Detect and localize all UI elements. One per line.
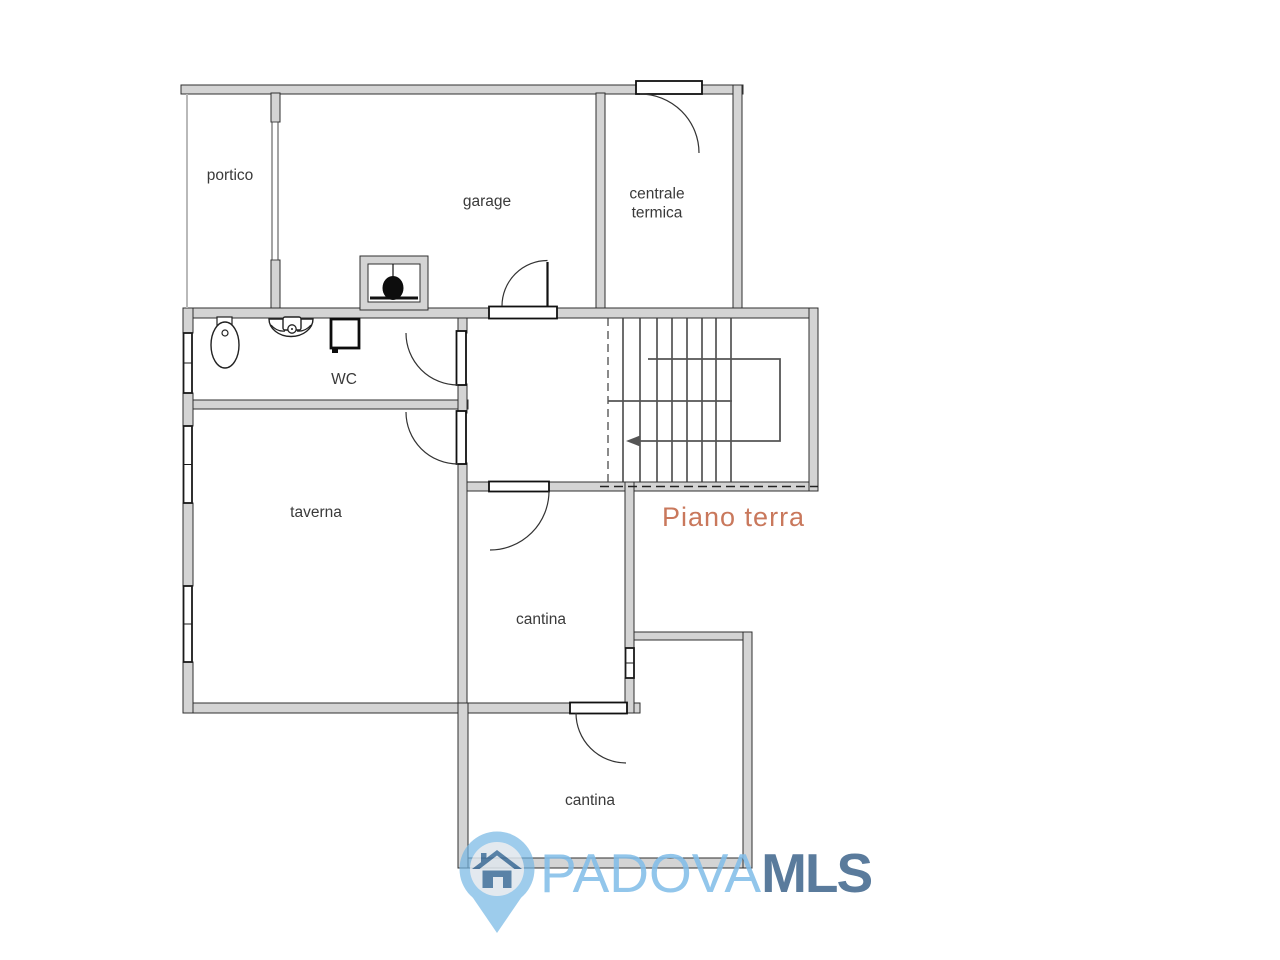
drain-icon — [383, 276, 404, 300]
floor-plan-drawing — [0, 0, 1280, 960]
room-label-wc: WC — [331, 371, 357, 389]
stair-direction-arrow — [626, 436, 640, 447]
door-cantina-2 — [570, 703, 627, 764]
wc-fixtures — [211, 317, 359, 368]
door-taverna — [406, 411, 466, 464]
door-wc — [406, 331, 466, 385]
shaft — [360, 256, 428, 310]
room-label-taverna: taverna — [290, 504, 342, 522]
room-label-cantina-2: cantina — [565, 792, 615, 810]
toilet-icon — [211, 317, 239, 368]
room-label-portico: portico — [207, 167, 254, 185]
staircase — [600, 318, 818, 487]
door-garage — [489, 261, 557, 319]
floor-title: Piano terra — [662, 502, 805, 533]
room-label-cantina-1: cantina — [516, 611, 566, 629]
washbasin-icon — [269, 317, 313, 337]
door-centrale-termica — [636, 81, 702, 153]
shower-tray-icon — [331, 319, 359, 353]
floor-plan-page: portico garage centrale termica WC taver… — [0, 0, 1280, 960]
portico-open-edge — [187, 94, 278, 308]
room-label-garage: garage — [463, 193, 511, 211]
windows — [183, 333, 635, 678]
door-cantina-1 — [489, 482, 549, 551]
stair-walk-line — [634, 359, 780, 441]
room-label-centrale-termica: centrale termica — [620, 185, 694, 224]
